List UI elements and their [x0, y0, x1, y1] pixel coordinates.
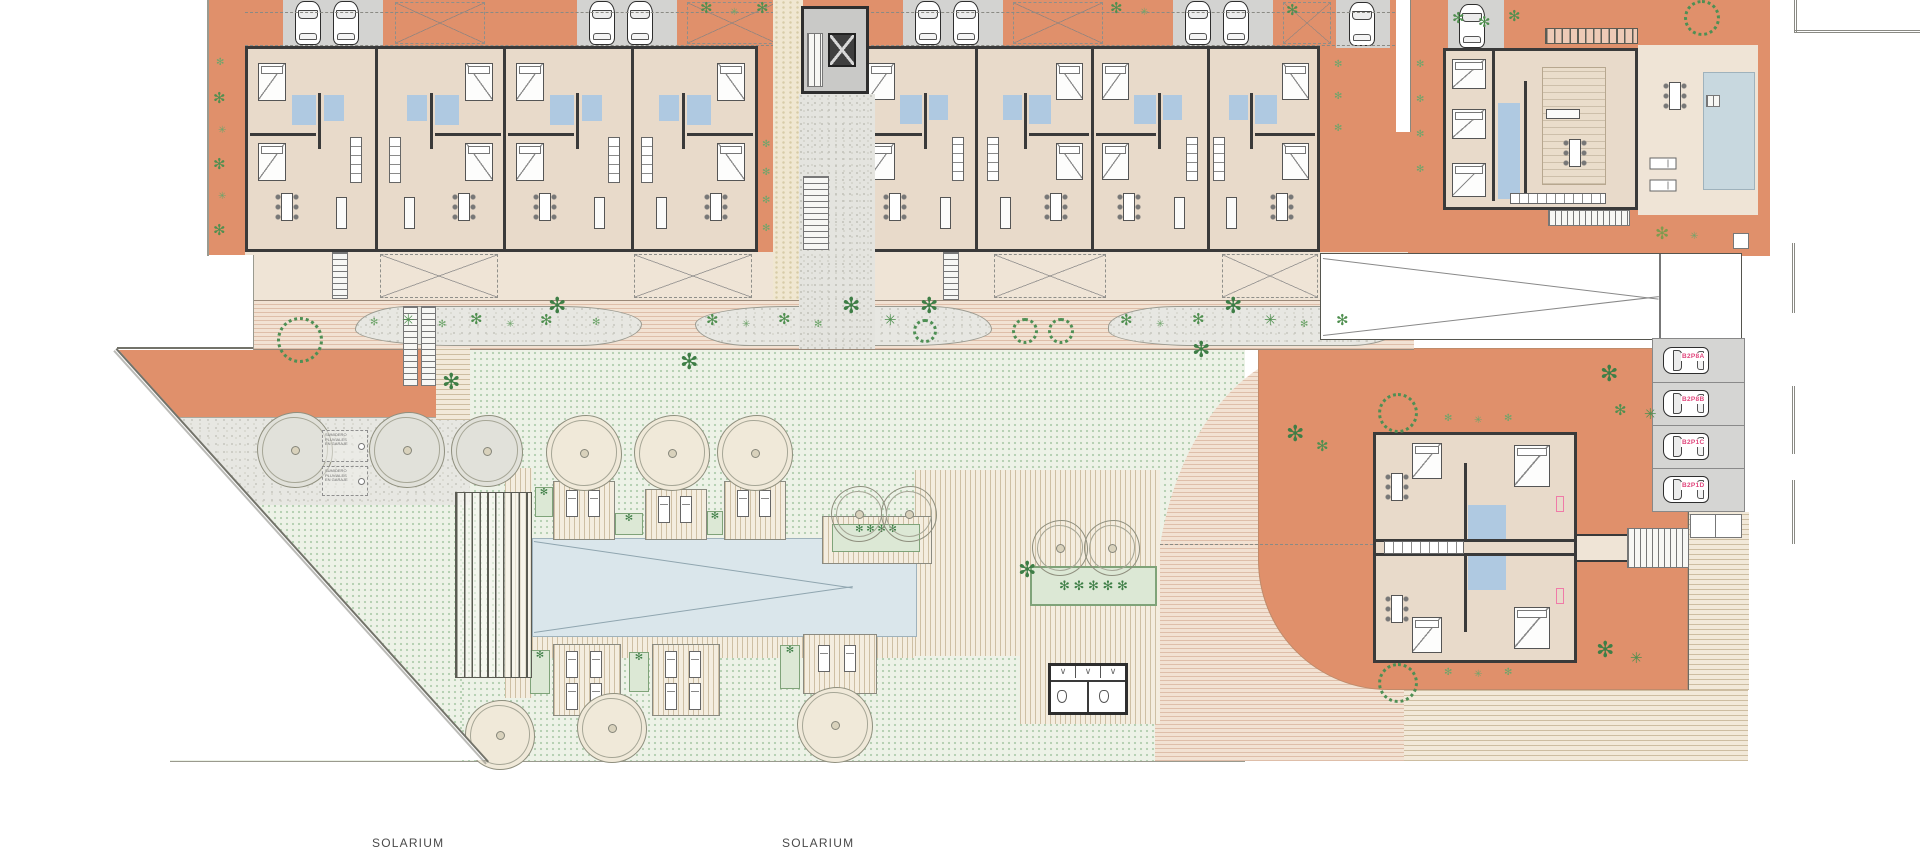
kitchen — [987, 137, 999, 181]
planter: ✻ — [530, 650, 550, 694]
bed — [1514, 445, 1550, 487]
sun-platform — [652, 644, 720, 716]
drain-circle-icon — [358, 478, 365, 485]
interior-wall — [1255, 133, 1315, 136]
bed — [1282, 143, 1309, 180]
dining-table — [1043, 189, 1069, 225]
tree — [1032, 520, 1088, 576]
sun-lounger — [588, 490, 600, 517]
tree — [797, 687, 873, 763]
parking-label: B2P8A — [1681, 353, 1705, 361]
palm-icon: ✳ — [1264, 314, 1277, 328]
bathroom — [407, 95, 427, 121]
dining-table — [1269, 189, 1295, 225]
road-edge-line — [1792, 386, 1795, 454]
palm-icon: ✻ — [1120, 314, 1133, 328]
sofa — [404, 197, 415, 229]
planter: ✻ — [707, 511, 723, 535]
unit-tag — [1556, 496, 1564, 512]
sun-lounger — [680, 496, 692, 523]
bathroom — [550, 95, 574, 125]
utility-divider — [1715, 515, 1716, 537]
palm-icon: ✻ — [1192, 340, 1210, 360]
bathroom — [1163, 95, 1182, 120]
road-edge-line — [1792, 243, 1795, 313]
bed — [1412, 617, 1442, 653]
patio-x-3 — [994, 254, 1106, 298]
palm-icon: ✳ — [506, 320, 514, 330]
palm-icon: ✻ — [1416, 95, 1424, 105]
core-stairs — [807, 33, 823, 87]
apartment-unit — [378, 49, 503, 249]
dining-table — [1116, 189, 1142, 225]
tree — [881, 486, 937, 542]
parking-strip: B2P8A B2P8B B2P1C B2P1D — [1652, 338, 1745, 512]
palm-icon: ✻ — [213, 224, 226, 238]
bed — [1452, 59, 1486, 89]
car-icon — [1223, 1, 1249, 45]
tree — [1084, 520, 1140, 576]
interior-wall — [1025, 93, 1028, 149]
road-edge-line — [1792, 480, 1795, 544]
building-1 — [245, 46, 758, 252]
duplex-entry-corridor — [1577, 534, 1627, 562]
dining-table — [1562, 135, 1588, 171]
planter: ✻ — [615, 513, 643, 535]
kitchen — [389, 137, 401, 183]
palm-icon: ✻ — [1452, 12, 1465, 26]
villa-pergola — [1545, 28, 1638, 44]
boundary-notch-line — [117, 347, 253, 349]
sun-platform — [645, 489, 707, 540]
car-icon — [295, 1, 321, 45]
unit-tag — [1556, 588, 1564, 604]
bathroom — [687, 95, 711, 125]
sun-lounger — [658, 496, 670, 523]
pool-depth-line — [534, 541, 853, 588]
bed — [717, 63, 745, 101]
bathroom — [900, 95, 922, 124]
duplex-stair — [1627, 528, 1689, 568]
apartment-unit — [506, 49, 631, 249]
sun-lounger — [1650, 158, 1677, 170]
apartment-unit — [634, 49, 755, 249]
palm-icon: ✻ — [1334, 60, 1342, 70]
solarium-label-2: SOLARIUM — [782, 836, 854, 850]
bed — [516, 63, 544, 101]
parking-label: B2P1D — [1681, 482, 1705, 490]
palm-icon: ✻ — [1286, 4, 1299, 18]
dining-table — [703, 189, 729, 225]
dining-table — [532, 189, 558, 225]
palm-icon: ✻ — [706, 314, 719, 328]
boundary-left-line — [207, 0, 209, 256]
sun-lounger — [1650, 180, 1677, 192]
garden-stair-a — [332, 252, 348, 299]
palm-icon: ✻ — [920, 296, 938, 316]
deck-parking-walk — [1688, 512, 1749, 690]
bathroom — [929, 95, 948, 120]
spine-outdoor-stair — [803, 176, 829, 250]
sofa — [940, 197, 951, 229]
planter: ✻ — [780, 645, 800, 689]
bed — [258, 63, 286, 101]
apartment-unit — [1210, 49, 1317, 249]
shrub-ring — [913, 319, 937, 343]
planter: ✻ — [629, 652, 649, 692]
road-corner-h — [1794, 30, 1920, 33]
car-icon — [627, 1, 653, 45]
parking-label: B2P8B — [1681, 396, 1705, 404]
bed — [717, 143, 745, 181]
sofa — [1226, 197, 1237, 229]
palm-icon: ✳ — [1690, 232, 1698, 242]
palm-icon: ✳ — [1474, 416, 1482, 426]
margin-top-left — [0, 0, 208, 256]
palm-icon: ✳ — [1474, 670, 1482, 680]
bed — [1452, 109, 1486, 139]
palm-icon: ✳ — [1644, 408, 1657, 422]
dining-table — [274, 189, 300, 225]
palm-icon: ✻ — [762, 224, 770, 234]
bathroom — [324, 95, 344, 121]
interior-wall — [924, 93, 927, 149]
interior-wall — [683, 93, 686, 149]
tree — [577, 693, 647, 763]
garden-stair-b — [943, 252, 959, 300]
shrub-ring — [1684, 0, 1720, 36]
ramp-line — [1323, 258, 1659, 300]
palm-icon: ✻ — [700, 2, 713, 16]
palm-icon: ✻ — [762, 168, 770, 178]
annotation-box: SUMIDERO PLUVIALES EN GARAJE — [322, 466, 368, 496]
palm-icon: ✻ — [370, 318, 378, 328]
interior-wall — [1096, 133, 1156, 136]
shrub-ring — [1012, 318, 1038, 344]
villa-entry-steps — [1548, 210, 1630, 226]
kitchen — [1384, 541, 1464, 554]
interior-wall — [1087, 680, 1089, 712]
palm-icon: ✻ — [842, 296, 860, 316]
ramp-divider — [1659, 254, 1661, 338]
car-icon — [953, 1, 979, 45]
palm-icon: ✻ — [756, 2, 769, 16]
patio-x-4 — [1222, 254, 1318, 298]
tree — [634, 415, 710, 491]
bed — [516, 143, 544, 181]
car-icon — [1185, 1, 1211, 45]
palm-icon: ✻ — [1416, 60, 1424, 70]
stair-core — [801, 6, 869, 94]
bathroom — [435, 95, 459, 125]
interior-wall — [318, 93, 321, 149]
deck-bottom-right — [1404, 688, 1748, 761]
dining-table — [882, 189, 908, 225]
dining-table — [451, 189, 477, 225]
palm-icon: ✻ — [1110, 2, 1123, 16]
palm-icon: ✻ — [762, 196, 770, 206]
sofa — [656, 197, 667, 229]
palm-icon: ✻ — [1596, 640, 1614, 660]
sun-lounger — [844, 645, 856, 672]
changing-stall: ∨ — [1076, 666, 1101, 678]
bathroom — [292, 95, 316, 125]
bed — [1056, 143, 1083, 180]
elevator — [828, 33, 856, 67]
kitchen — [1186, 137, 1198, 181]
interior-wall — [250, 133, 316, 136]
palm-icon: ✻ — [1508, 10, 1521, 24]
bay-divider — [1653, 468, 1744, 469]
bed — [1102, 143, 1129, 180]
sofa — [1174, 197, 1185, 229]
sun-lounger — [566, 683, 578, 710]
villa-pool — [1703, 72, 1755, 190]
bathroom — [582, 95, 602, 121]
annotation-box: SUMIDERO PLUVIALES EN GARAJE — [322, 430, 368, 462]
villa-plot-gap — [1396, 0, 1411, 132]
basement-ramp — [1320, 253, 1742, 340]
sun-lounger — [665, 683, 677, 710]
pool-depth-line — [534, 586, 853, 633]
sun-lounger — [689, 651, 701, 678]
shrub-ring — [1378, 393, 1418, 433]
palm-icon: ✳ — [218, 192, 226, 202]
car-icon — [333, 1, 359, 45]
palm-icon: ✻ — [216, 58, 224, 68]
tree — [717, 415, 793, 491]
bed — [465, 63, 493, 101]
interior-wall — [1464, 463, 1467, 539]
apartment-unit — [1094, 49, 1207, 249]
apartment-unit — [248, 49, 375, 249]
ramp-line — [1323, 296, 1659, 336]
interior-wall — [1524, 81, 1527, 201]
kitchen — [608, 137, 620, 183]
car-icon — [915, 1, 941, 45]
palm-icon: ✳ — [1156, 320, 1164, 330]
palm-icon: ✻ — [213, 92, 226, 106]
palm-icon: ✻ — [1416, 165, 1424, 175]
interior-wall — [1251, 93, 1254, 149]
tree — [451, 415, 523, 487]
palm-icon: ✻ — [592, 318, 600, 328]
interior-wall — [1158, 93, 1161, 149]
car-icon — [1349, 2, 1375, 46]
palm-icon: ✻ — [1614, 404, 1627, 418]
sun-lounger — [566, 651, 578, 678]
sofa — [594, 197, 605, 229]
palm-icon: ✳ — [730, 8, 738, 18]
interior-wall — [508, 133, 574, 136]
palm-icon: ✻ — [1478, 16, 1491, 30]
sun-lounger — [689, 683, 701, 710]
duplex-building — [1373, 432, 1577, 663]
kitchen — [641, 137, 653, 183]
wc-block: ∨ ∨ ∨ — [1048, 663, 1128, 715]
tree — [369, 412, 445, 488]
shrub-ring — [277, 317, 323, 363]
utility-boxes — [1690, 514, 1742, 538]
palm-icon: ✳ — [402, 314, 415, 328]
palm-icon: ✻ — [438, 320, 446, 330]
palm-icon: ✳ — [884, 314, 897, 328]
promenade-stair-2 — [421, 306, 436, 386]
tree — [546, 415, 622, 491]
sun-lounger — [665, 651, 677, 678]
patio-top-1 — [395, 2, 485, 44]
sun-lounger — [566, 490, 578, 517]
bathroom — [1498, 103, 1520, 199]
interior-wall — [687, 133, 753, 136]
interior-wall — [576, 93, 579, 149]
access-dash-line — [1160, 544, 1373, 546]
palm-icon: ✻ — [1444, 414, 1452, 424]
kitchen — [350, 137, 362, 183]
dining-table — [1384, 469, 1410, 505]
toilet — [1099, 690, 1109, 703]
palm-icon: ✻ — [1655, 226, 1669, 242]
palm-icon: ✳ — [1630, 652, 1643, 666]
solarium-label-1: SOLARIUM — [372, 836, 444, 850]
sun-lounger — [759, 490, 771, 517]
sofa — [336, 197, 347, 229]
bathroom — [1029, 95, 1051, 124]
palm-icon: ✻ — [1224, 296, 1242, 316]
site-plan-canvas: ✻ ✻ ✻ ✻ ✻ ✻ ✻ ✻ ✻ ✻ ✻ ✻ ✳ ✻ ✻ ✻ — [0, 0, 1920, 850]
palm-icon: ✻ — [1286, 424, 1304, 444]
changing-stall: ∨ — [1051, 666, 1076, 678]
palm-icon: ✻ — [1504, 414, 1512, 424]
palm-icon: ✻ — [1192, 313, 1205, 327]
shrub-ring — [1378, 663, 1418, 703]
kitchen — [1510, 193, 1606, 204]
palm-icon: ✻ — [213, 158, 226, 172]
palm-icon: ✻ — [1334, 92, 1342, 102]
palm-icon: ✳ — [742, 320, 750, 330]
bed — [258, 143, 286, 181]
palm-icon: ✻ — [762, 140, 770, 150]
palm-icon: ✻ — [1336, 314, 1349, 328]
palm-icon: ✻ — [1416, 130, 1424, 140]
sun-platform — [803, 634, 877, 694]
palm-icon: ✻ — [814, 320, 822, 330]
sun-lounger — [818, 645, 830, 672]
patio-x-1 — [380, 254, 498, 298]
bed — [1102, 63, 1129, 100]
planter: ✻ — [535, 487, 553, 517]
villa-building — [1443, 48, 1638, 210]
palm-icon: ✳ — [218, 126, 226, 136]
patio-top-3 — [1013, 2, 1103, 44]
apartment-unit — [860, 49, 975, 249]
lawn-pergola — [455, 492, 532, 678]
sun-lounger — [737, 490, 749, 517]
patio-x-2 — [634, 254, 752, 298]
drain-circle-icon — [358, 443, 365, 450]
kitchen — [1213, 137, 1225, 181]
toilet — [1057, 690, 1067, 703]
planter-box — [1733, 233, 1749, 249]
palm-icon: ✻ — [1316, 440, 1329, 454]
margin-left-step — [0, 255, 254, 350]
palm-icon: ✻ — [778, 313, 791, 327]
sofa — [1000, 197, 1011, 229]
palm-icon: ✻ — [442, 372, 460, 392]
bathroom — [1468, 505, 1506, 539]
bathroom — [1229, 95, 1248, 120]
bay-divider — [1653, 382, 1744, 383]
tree — [831, 486, 887, 542]
bed — [1056, 63, 1083, 100]
palm-icon: ✻ — [548, 296, 566, 316]
bathroom — [1134, 95, 1156, 124]
palm-icon: ✻ — [470, 313, 483, 327]
interior-wall — [1464, 556, 1467, 632]
bed — [1514, 607, 1550, 649]
palm-icon: ✻ — [680, 352, 698, 372]
interior-wall — [435, 133, 501, 136]
bathroom — [659, 95, 679, 121]
palm-icon: ✻ — [1018, 560, 1036, 580]
bed — [1452, 163, 1486, 197]
road-corner-v — [1794, 0, 1797, 32]
palm-icon: ✻ — [1504, 668, 1512, 678]
parking-label: B2P1C — [1681, 439, 1705, 447]
changing-stall: ∨ — [1101, 666, 1125, 678]
kitchen — [952, 137, 964, 181]
car-icon — [589, 1, 615, 45]
bed — [465, 143, 493, 181]
palm-icon: ✻ — [1444, 668, 1452, 678]
building-2 — [857, 46, 1320, 252]
palm-icon: ✻ — [1334, 124, 1342, 134]
bed — [1282, 63, 1309, 100]
terrace-dining-table — [1662, 78, 1688, 114]
bathroom — [1468, 556, 1506, 590]
bathroom — [1003, 95, 1022, 120]
bay-divider — [1653, 425, 1744, 426]
palm-icon: ✻ — [1600, 364, 1618, 384]
dining-table — [1384, 591, 1410, 627]
apartment-unit — [978, 49, 1091, 249]
sofa — [1546, 109, 1580, 119]
palm-icon: ✻ — [1300, 320, 1308, 330]
interior-wall — [431, 93, 434, 149]
interior-wall — [1492, 51, 1495, 201]
bathroom — [1255, 95, 1277, 124]
bed — [1412, 443, 1442, 479]
sun-lounger — [590, 651, 602, 678]
palm-icon: ✳ — [1140, 8, 1148, 18]
shrub-ring — [1048, 318, 1074, 344]
pool-steps — [1706, 95, 1720, 107]
interior-wall — [1029, 133, 1089, 136]
